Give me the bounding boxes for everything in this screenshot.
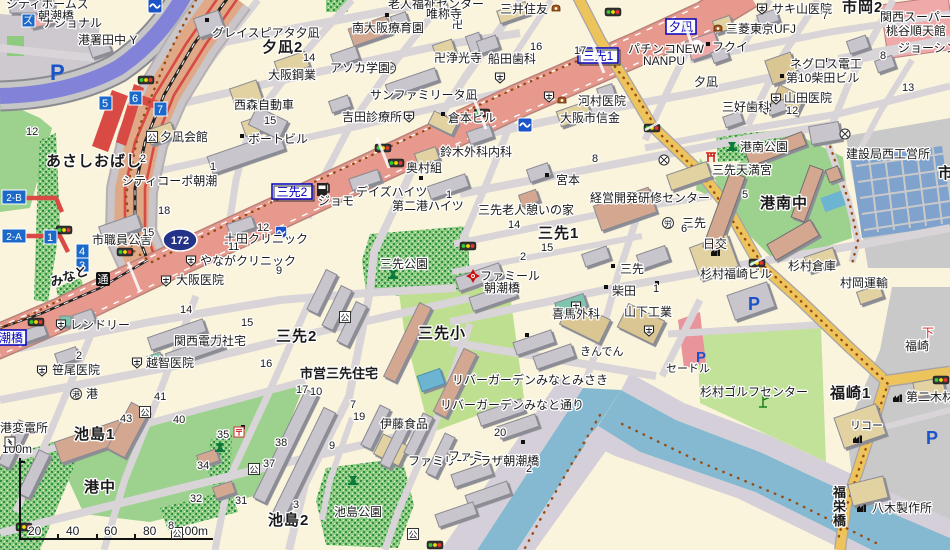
svg-text:40: 40 [66,524,80,538]
svg-text:8: 8 [880,50,886,62]
svg-text:港: 港 [72,390,80,400]
svg-text:5: 5 [742,189,748,201]
svg-text:日交: 日交 [703,236,727,251]
svg-text:2-A: 2-A [6,232,22,243]
svg-text:三先2: 三先2 [277,185,308,199]
svg-text:13: 13 [902,82,914,94]
svg-text:通: 通 [98,273,109,286]
svg-text:伊藤食品: 伊藤食品 [380,416,428,431]
svg-text:リコー: リコー [850,420,883,432]
svg-text:43: 43 [120,413,132,425]
svg-text:港南中: 港南中 [760,194,808,212]
svg-text:経営開発研修センター: 経営開発研修センター [590,190,710,205]
svg-text:シティコーポ朝潮: シティコーポ朝潮 [122,173,217,188]
svg-text:6: 6 [681,223,687,235]
svg-text:37: 37 [263,458,275,470]
svg-text:31: 31 [235,495,247,507]
svg-text:172: 172 [171,235,189,247]
svg-text:港変電所: 港変電所 [0,420,48,435]
svg-text:P: P [926,428,938,448]
svg-text:60: 60 [104,524,118,538]
svg-text:船田歯科: 船田歯科 [488,52,536,66]
svg-text:8: 8 [168,520,174,532]
svg-text:三先小: 三先小 [418,324,466,342]
svg-text:12: 12 [257,222,269,234]
svg-text:夕凪2: 夕凪2 [262,38,303,56]
svg-text:笹尾医院: 笹尾医院 [52,363,100,377]
svg-text:グレイスピアタ夕凪: グレイスピアタ夕凪 [212,26,320,40]
svg-text:喜馬外科: 喜馬外科 [552,307,600,321]
svg-text:2: 2 [526,463,532,475]
svg-text:15: 15 [541,242,553,254]
svg-text:デイズハイツ: デイズハイツ [356,184,427,199]
svg-text:夕凪: 夕凪 [694,75,718,89]
svg-text:1: 1 [653,283,659,295]
svg-text:リバーガーデンみなと通り: リバーガーデンみなと通り [440,397,584,412]
svg-text:港: 港 [86,387,98,401]
svg-text:フクイ: フクイ [712,40,748,54]
svg-text:リバーガーデンみなとみさき: リバーガーデンみなとみさき [452,372,608,387]
svg-text:下: 下 [922,326,934,340]
svg-text:アソカ学園: アソカ学園 [330,60,390,75]
svg-text:2: 2 [140,153,146,165]
svg-text:福崎1: 福崎1 [829,384,871,402]
svg-text:きんでん: きんでん [580,345,623,358]
svg-text:河村医院: 河村医院 [578,94,626,108]
svg-text:池島1: 池島1 [74,425,115,443]
svg-text:1: 1 [210,161,216,173]
svg-text:池島公園: 池島公園 [334,504,382,519]
svg-text:8: 8 [592,153,598,165]
svg-text:潮橋: 潮橋 [0,330,23,345]
svg-text:唯称寺: 唯称寺 [426,7,462,21]
svg-text:卍浄光寺: 卍浄光寺 [434,51,482,65]
svg-text:吉田診療所: 吉田診療所 [342,109,402,124]
svg-text:12: 12 [786,105,798,117]
svg-text:杉村ゴルフセンター: 杉村ゴルフセンター [700,384,808,399]
svg-text:南大阪療育園: 南大阪療育園 [352,20,424,35]
svg-text:三先公園: 三先公園 [380,257,428,271]
svg-text:八木製作所: 八木製作所 [872,501,932,515]
svg-text:14: 14 [180,304,192,316]
svg-text:第10柴田ビル: 第10柴田ビル [786,71,859,85]
svg-text:奥村組: 奥村組 [406,161,442,175]
svg-text:19: 19 [353,411,365,423]
svg-text:ズ: ズ [23,14,33,27]
svg-text:2: 2 [520,251,526,263]
svg-text:杉村福崎ビル: 杉村福崎ビル [700,266,772,281]
svg-text:3: 3 [293,499,299,511]
svg-text:ナショナル: ナショナル [42,16,102,30]
svg-text:41: 41 [154,391,166,403]
svg-text:関西電力社宅: 関西電力社宅 [174,333,246,348]
svg-text:14: 14 [303,52,315,64]
svg-text:ボートビル: ボートビル [248,132,308,146]
svg-text:14: 14 [508,219,520,231]
svg-text:市営三先住宅: 市営三先住宅 [300,366,378,381]
svg-text:1: 1 [446,189,452,201]
svg-text:9: 9 [329,440,335,452]
svg-text:港署田中 Y: 港署田中 Y [78,32,137,47]
svg-text:三先天満宮: 三先天満宮 [712,162,772,177]
svg-text:大阪医院: 大阪医院 [176,273,224,287]
svg-text:18: 18 [158,205,170,217]
svg-text:村岡運輸: 村岡運輸 [840,275,888,290]
svg-text:福崎: 福崎 [905,338,929,353]
svg-text:ネグロス電工: ネグロス電工 [790,57,862,71]
svg-text:20: 20 [28,524,42,538]
svg-text:三好歯科: 三好歯科 [722,100,770,114]
svg-text:1: 1 [47,232,53,244]
svg-text:38: 38 [275,437,287,449]
svg-text:7: 7 [157,104,163,116]
svg-text:鈴木外科内科: 鈴木外科内科 [440,144,512,159]
svg-text:建設局西工営所: 建設局西工営所 [846,146,930,161]
svg-text:山田医院: 山田医院 [784,91,832,105]
svg-text:9: 9 [276,265,282,277]
svg-text:西森自動車: 西森自動車 [234,97,294,112]
svg-text:福栄橋: 福栄橋 [832,485,847,528]
svg-text:レンドリー: レンドリー [70,318,130,332]
svg-text:17: 17 [574,45,586,57]
svg-text:三井住友: 三井住友 [500,2,548,16]
svg-text:大阪鋼業: 大阪鋼業 [268,68,316,82]
svg-text:80: 80 [143,524,157,538]
svg-text:16: 16 [260,358,272,370]
svg-text:宮本: 宮本 [556,172,580,187]
svg-text:17: 17 [296,384,308,396]
svg-text:5: 5 [102,98,108,110]
svg-text:市岡2: 市岡2 [842,0,883,16]
svg-text:第二木材: 第二木材 [906,390,950,404]
svg-text:15: 15 [264,115,276,127]
svg-text:20: 20 [494,427,506,439]
svg-text:大阪市信金: 大阪市信金 [560,110,620,125]
svg-text:三先1: 三先1 [538,224,579,242]
svg-text:6: 6 [132,93,138,105]
svg-text:杉村倉庫: 杉村倉庫 [788,258,836,273]
svg-text:越智医院: 越智医院 [146,355,194,370]
svg-text:15: 15 [142,227,154,239]
svg-text:10: 10 [310,386,322,398]
svg-text:池島2: 池島2 [268,511,309,529]
svg-text:40: 40 [173,414,185,426]
svg-text:関西スーパー: 関西スーパー [880,10,950,24]
svg-text:7: 7 [350,399,356,411]
svg-text:セードル: セードル [666,362,710,375]
svg-text:夕凪: 夕凪 [669,20,693,34]
svg-text:32: 32 [190,493,202,505]
svg-text:あさしおばし: あさしおばし [46,153,142,170]
svg-text:11: 11 [228,241,239,253]
svg-text:三先: 三先 [620,262,644,276]
svg-text:16: 16 [530,41,542,53]
svg-text:桃谷順天館: 桃谷順天館 [886,23,946,38]
svg-text:三先2: 三先2 [276,327,317,345]
svg-text:三先老人憩いの家: 三先老人憩いの家 [478,202,574,217]
svg-text:サンファミリータ凪: サンファミリータ凪 [370,88,478,102]
svg-text:倉本ビル: 倉本ビル [448,110,496,125]
svg-text:NANPU: NANPU [643,54,685,68]
svg-text:市: 市 [938,164,950,182]
svg-text:第二港ハイツ: 第二港ハイツ [392,199,464,213]
svg-text:35: 35 [217,429,229,441]
svg-text:三菱東京UFJ: 三菱東京UFJ [726,22,796,36]
svg-text:12: 12 [26,126,38,138]
svg-text:4: 4 [79,246,85,258]
svg-text:港中: 港中 [84,478,116,496]
svg-text:柴田: 柴田 [612,284,636,298]
svg-text:港南公園: 港南公園 [740,139,788,154]
svg-text:7: 7 [822,10,828,22]
svg-text:ファミ: ファミ [448,449,484,463]
svg-text:2-B: 2-B [6,193,22,204]
svg-text:ジョーシン: ジョーシン [898,41,950,55]
svg-text:34: 34 [197,460,209,472]
svg-text:15: 15 [241,317,253,329]
svg-text:夕凪会館: 夕凪会館 [160,129,208,144]
svg-text:P: P [50,60,65,85]
svg-text:P: P [748,294,760,314]
svg-text:労: 労 [664,219,672,229]
svg-text:ジョモ: ジョモ [318,194,354,208]
svg-text:2: 2 [76,350,82,362]
svg-text:山下工業: 山下工業 [624,305,672,319]
svg-text:朝潮橋: 朝潮橋 [484,280,520,295]
